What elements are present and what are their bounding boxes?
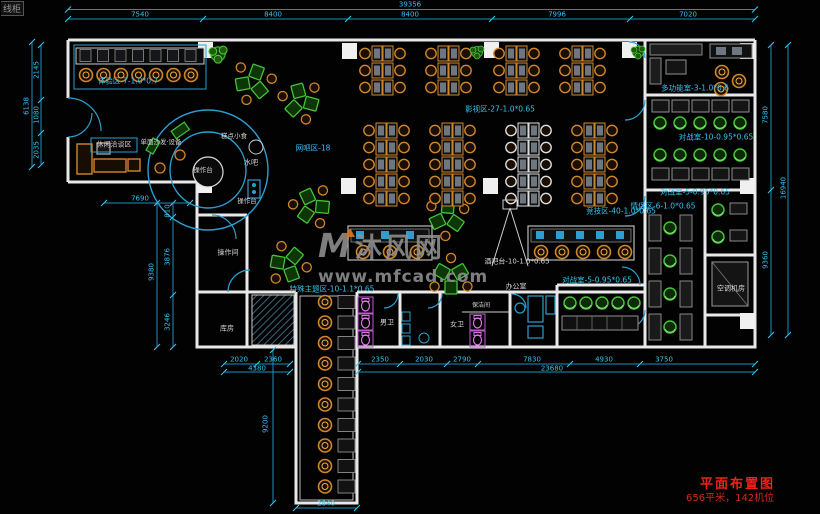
dim-bleft-2: 2360 [264,357,282,364]
dim-leftmid-3: 3246 [165,313,172,331]
zone-label-battle-center: 对战室-5-0.95*0.65 [562,276,632,284]
dim-right-total: 16940 [781,177,788,199]
dim-top-2: 8400 [264,12,282,19]
dim-top-1: 7540 [131,12,149,19]
zone-label-counter-a: 操作台 [193,167,213,174]
dim-bright-1: 2350 [371,357,389,364]
zone-label-battle-5: 对战室-5-0.95*0.65 [660,188,730,196]
dim-bleft-1: 2020 [230,357,248,364]
dim-corridor-height: 9200 [263,415,270,433]
dim-top-4: 7996 [548,12,566,19]
dim-right-1: 7580 [763,106,770,124]
zone-label-ac-room: 空调机房 [717,286,745,293]
zone-label-battle-10: 对战室-10-0.95*0.65 [679,133,754,141]
zone-label-counter-b: 操作台 [237,198,257,205]
dim-left-1: 2145 [34,61,41,79]
dim-top-total: 39356 [399,2,421,9]
zone-label-couple: 情侣区-6-1.0*0.65 [630,202,695,210]
zone-label-water-bar: 水吧 [244,160,258,167]
zone-label-special: 特殊主题区-10-1.1*0.65 [290,285,375,293]
dim-bright-total: 23680 [541,366,563,373]
toilet-fixtures [358,297,485,347]
dim-leftmid-2: 3876 [165,248,172,266]
projector-lines [492,200,528,266]
zone-label-office: 办公室 [506,284,527,291]
cad-floor-plan-canvas: 39356 7540 8400 8400 7996 7020 6138 2145… [0,0,820,514]
zone-label-experience: 体验区-7-1.0*0.7 [98,77,158,85]
zone-label-leisure: 休闲洽谈区 [97,142,132,149]
plan-subtitle: 656平米，142机位 [686,489,774,504]
dim-left-3: 2035 [34,141,41,159]
couple-booths [649,215,692,340]
dim-bright-4: 7830 [523,357,541,364]
dim-bright-2: 2030 [415,357,433,364]
dim-top-5: 7020 [679,12,697,19]
zone-label-multi-room: 多功能室-3-1.0*0.6 [661,84,729,92]
zone-label-storage: 库房 [220,326,234,333]
zone-label-male-wc: 男卫 [380,320,394,327]
bar-counter [348,226,634,260]
zone-label-net-area: 网吧区-18 [296,144,331,152]
zone-label-movie: 影视区-27-1.0*0.65 [465,105,535,113]
dim-bright-6: 3750 [655,357,673,364]
dim-top-3: 8400 [401,12,419,19]
dim-bleft-total: 4380 [248,366,266,373]
dim-right-2: 9360 [763,251,770,269]
battle-room-5-right [712,203,747,243]
zone-label-female-wc: 女卫 [450,322,464,329]
zone-label-op-room: 操作间 [218,250,239,257]
dim-leftmid-1: 810 [165,204,172,217]
zone-label-snack: 糕点小食 [221,133,247,140]
zone-label-cleaning: 保洁间 [472,303,490,309]
dim-left-2: 1080 [34,106,41,124]
dim-leftmid-width: 7690 [131,196,149,203]
dim-leftmid-total: 9380 [149,263,156,281]
special-theme-corridor [300,296,355,501]
dim-bright-5: 4930 [595,357,613,364]
zone-label-sofa-note: 单面沙发·设备 [140,139,181,146]
dim-bright-3: 2790 [453,357,471,364]
dim-corridor-width: 2840 [317,501,335,508]
office-furniture [515,296,555,338]
corner-note: 线柜 [1,1,24,16]
dim-left-total: 6138 [24,97,31,115]
zone-label-bar-seats: 酒吧台-10-1.0*0.65 [484,259,549,266]
hatched-storage-area [252,295,294,345]
battle-room-center [562,297,640,330]
